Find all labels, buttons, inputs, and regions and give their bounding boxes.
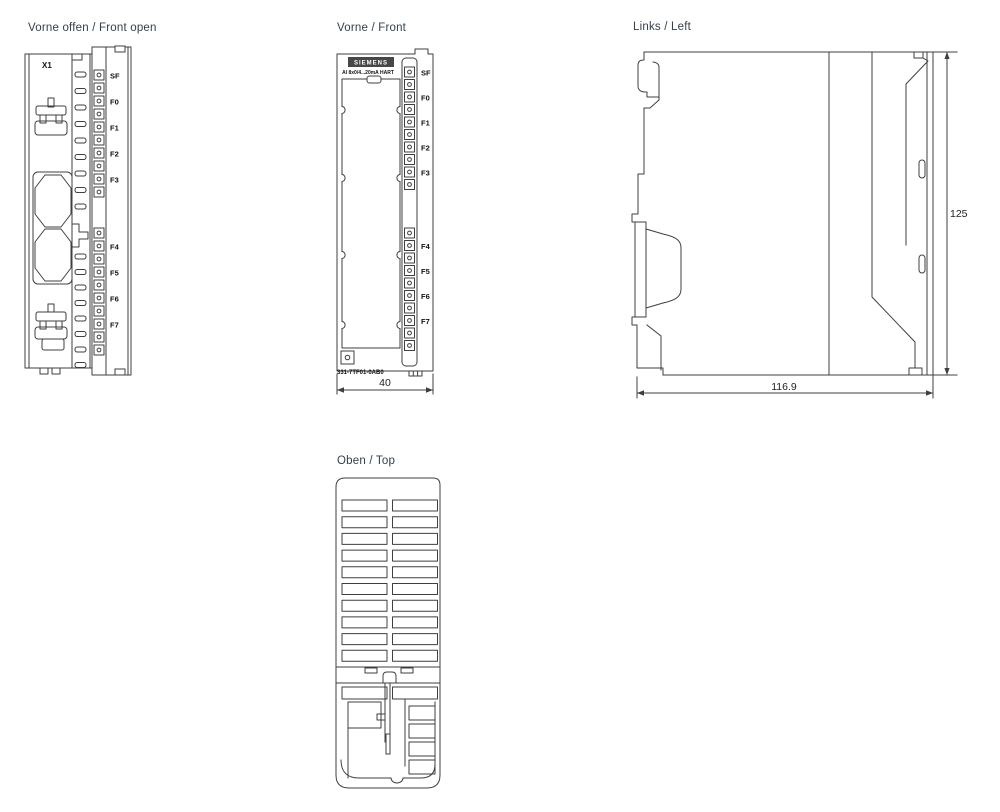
led-box bbox=[94, 174, 104, 184]
led-lamp bbox=[408, 269, 412, 273]
led-lamp bbox=[97, 125, 101, 129]
led-lamp bbox=[408, 319, 412, 323]
led-box bbox=[94, 332, 104, 342]
technical-drawing-canvas: Vorne offen / Front open Vorne / Front L… bbox=[0, 0, 1000, 812]
dimension-width-value: 40 bbox=[379, 377, 391, 389]
led-lamp bbox=[97, 177, 101, 181]
led-box bbox=[94, 135, 104, 145]
led-box bbox=[94, 254, 104, 264]
led-box bbox=[405, 241, 415, 251]
vent-slot bbox=[342, 550, 387, 561]
vent-slot bbox=[393, 533, 438, 544]
connector-label-x1: X1 bbox=[42, 61, 52, 70]
led-lamp bbox=[408, 231, 412, 235]
led-box bbox=[94, 187, 104, 197]
view-top bbox=[333, 470, 448, 800]
led-box bbox=[94, 70, 104, 80]
terminal-slot bbox=[75, 122, 86, 127]
brand-logo-text: SIEMENS bbox=[354, 61, 388, 67]
din-rail-profile bbox=[632, 52, 681, 375]
led-lamp bbox=[97, 138, 101, 142]
bottom-step bbox=[647, 325, 661, 370]
vent-slot bbox=[393, 500, 438, 511]
terminal-slot bbox=[75, 347, 86, 352]
led-lamp bbox=[97, 309, 101, 313]
dimension-width-40: 40 bbox=[337, 374, 433, 394]
led-label: F7 bbox=[421, 317, 430, 326]
terminal-slot bbox=[75, 155, 86, 160]
top-latch bbox=[35, 98, 67, 135]
view-title-front-open: Vorne offen / Front open bbox=[28, 22, 157, 34]
led-lamp bbox=[97, 283, 101, 287]
view-left-side: 125 116.9 bbox=[625, 40, 995, 405]
led-lamp bbox=[97, 244, 101, 248]
led-lamp bbox=[97, 86, 101, 90]
mounting-screw bbox=[341, 351, 354, 364]
led-box bbox=[405, 142, 415, 152]
led-lamp bbox=[97, 335, 101, 339]
led-lamp bbox=[408, 133, 412, 137]
dimension-depth-116-9: 116.9 bbox=[637, 375, 933, 398]
terminal-slot bbox=[75, 204, 86, 209]
led-box bbox=[94, 241, 104, 251]
led-box bbox=[94, 148, 104, 158]
lower-compartment bbox=[342, 683, 438, 778]
bus-connector-sockets bbox=[33, 172, 72, 284]
led-lamp bbox=[97, 99, 101, 103]
vent-slot bbox=[393, 517, 438, 528]
side-slot bbox=[919, 255, 925, 273]
led-lamp bbox=[408, 145, 412, 149]
terminal-slot bbox=[75, 363, 86, 368]
led-label: F4 bbox=[421, 242, 431, 251]
led-lamp bbox=[408, 170, 412, 174]
terminal-slot bbox=[75, 138, 86, 143]
led-label: F4 bbox=[110, 243, 120, 252]
terminal-slot bbox=[75, 316, 86, 321]
vent-slot bbox=[393, 600, 438, 611]
led-lamp bbox=[408, 83, 412, 87]
led-lamp bbox=[97, 231, 101, 235]
led-label: F2 bbox=[421, 144, 430, 153]
vent-slot bbox=[342, 650, 387, 661]
view-title-front: Vorne / Front bbox=[337, 22, 406, 34]
mid-band bbox=[336, 667, 440, 683]
led-label: F5 bbox=[110, 269, 119, 278]
led-strip: SFF0F1F2F3F4F5F6F7 bbox=[405, 67, 432, 351]
module-type-label: AI 8x0/4...20mA HART bbox=[342, 70, 394, 76]
led-box bbox=[405, 117, 415, 127]
terminal-slot bbox=[75, 188, 86, 193]
bus-connector-bump bbox=[646, 229, 681, 308]
door-latch-tab bbox=[367, 76, 381, 83]
led-box bbox=[405, 155, 415, 165]
vent-slot bbox=[342, 584, 387, 595]
led-lamp bbox=[408, 331, 412, 335]
vent-slot bbox=[342, 567, 387, 578]
vent-slot bbox=[393, 617, 438, 628]
led-label: SF bbox=[421, 69, 431, 78]
side-slot bbox=[919, 160, 925, 178]
led-label: F7 bbox=[110, 321, 119, 330]
led-label: F5 bbox=[421, 267, 430, 276]
led-lamp bbox=[408, 281, 412, 285]
led-box bbox=[94, 267, 104, 277]
led-lamp bbox=[408, 108, 412, 112]
led-box bbox=[94, 161, 104, 171]
terminal-slot bbox=[75, 332, 86, 337]
terminal-slot bbox=[75, 89, 86, 94]
led-lamp bbox=[408, 344, 412, 348]
terminal-slot bbox=[75, 301, 86, 306]
led-box bbox=[405, 328, 415, 338]
led-lamp bbox=[408, 120, 412, 124]
led-box bbox=[94, 345, 104, 355]
led-lamp bbox=[408, 158, 412, 162]
led-lamp bbox=[97, 164, 101, 168]
terminal-slot bbox=[75, 285, 86, 290]
led-box bbox=[405, 130, 415, 140]
led-label: SF bbox=[110, 72, 120, 81]
led-lamp bbox=[408, 70, 412, 74]
vent-slot bbox=[342, 533, 387, 544]
led-lamp bbox=[97, 322, 101, 326]
led-box bbox=[405, 67, 415, 77]
led-box bbox=[405, 291, 415, 301]
led-box bbox=[94, 83, 104, 93]
dimension-depth-value: 116.9 bbox=[771, 381, 797, 393]
vent-slot bbox=[342, 634, 387, 645]
terminal-slot bbox=[75, 270, 86, 275]
coding-key bbox=[72, 224, 88, 247]
led-label: F0 bbox=[421, 94, 430, 103]
terminal-slot bbox=[75, 72, 86, 77]
led-box bbox=[405, 341, 415, 351]
led-label: F0 bbox=[110, 98, 119, 107]
led-label: F2 bbox=[110, 150, 119, 159]
led-strip: SFF0F1F2F3F4F5F6F7 bbox=[94, 70, 120, 355]
led-box bbox=[405, 253, 415, 263]
bottom-latch bbox=[35, 304, 67, 350]
view-title-top: Oben / Top bbox=[337, 455, 395, 467]
led-label: F3 bbox=[110, 176, 119, 185]
led-box bbox=[405, 92, 415, 102]
terminal-slot bbox=[75, 254, 86, 259]
led-box bbox=[94, 319, 104, 329]
led-box bbox=[94, 122, 104, 132]
brand-logo-plate: SIEMENS bbox=[348, 57, 394, 67]
led-lamp bbox=[408, 244, 412, 248]
led-box bbox=[94, 306, 104, 316]
door-notches bbox=[341, 107, 401, 329]
led-lamp bbox=[408, 95, 412, 99]
led-lamp bbox=[97, 112, 101, 116]
led-lamp bbox=[408, 294, 412, 298]
vent-slot bbox=[342, 600, 387, 611]
led-lamp bbox=[97, 257, 101, 261]
terminal-slot-column bbox=[75, 72, 86, 368]
module-outline bbox=[337, 49, 433, 376]
led-lamp bbox=[97, 296, 101, 300]
led-box bbox=[405, 167, 415, 177]
led-box bbox=[405, 266, 415, 276]
vent-slot bbox=[393, 550, 438, 561]
led-lamp bbox=[97, 190, 101, 194]
front-flap-profile bbox=[872, 52, 928, 375]
led-box bbox=[405, 303, 415, 313]
led-lamp bbox=[97, 270, 101, 274]
vent-slot bbox=[342, 617, 387, 628]
led-box bbox=[405, 80, 415, 90]
led-box bbox=[94, 109, 104, 119]
led-lamp bbox=[408, 183, 412, 187]
led-label: F1 bbox=[421, 119, 430, 128]
led-box bbox=[94, 280, 104, 290]
terminal-slot bbox=[75, 105, 86, 110]
led-box bbox=[405, 228, 415, 238]
led-label: F1 bbox=[110, 124, 119, 133]
module-outline bbox=[644, 52, 957, 375]
led-box bbox=[405, 278, 415, 288]
vent-slot bbox=[393, 584, 438, 595]
vent-slot bbox=[393, 634, 438, 645]
view-title-left: Links / Left bbox=[633, 21, 691, 33]
vent-slot-grid bbox=[342, 500, 438, 661]
dimension-height-125: 125 bbox=[944, 52, 974, 375]
led-box bbox=[405, 105, 415, 115]
front-door bbox=[341, 76, 401, 348]
led-label: F6 bbox=[421, 292, 430, 301]
led-label: F6 bbox=[110, 295, 119, 304]
led-lamp bbox=[97, 151, 101, 155]
led-box bbox=[94, 293, 104, 303]
led-box bbox=[405, 180, 415, 190]
vent-slot bbox=[342, 500, 387, 511]
view-front: SIEMENS AI 8x0/4...20mA HART 331-7TF01-0… bbox=[335, 45, 445, 400]
led-lamp bbox=[97, 73, 101, 77]
led-lamp bbox=[408, 306, 412, 310]
vent-slot bbox=[393, 567, 438, 578]
order-number: 331-7TF01-0AB0 bbox=[337, 370, 384, 376]
view-front-open: X1 SFF0F1F2F3F4F5F6F7 bbox=[22, 42, 142, 387]
terminal-slot bbox=[75, 171, 86, 176]
dimension-height-value: 125 bbox=[950, 208, 968, 220]
led-box bbox=[405, 316, 415, 326]
led-box bbox=[94, 96, 104, 106]
led-lamp bbox=[97, 348, 101, 352]
vent-slot bbox=[393, 650, 438, 661]
vent-slot bbox=[342, 517, 387, 528]
led-box bbox=[94, 228, 104, 238]
led-lamp bbox=[408, 256, 412, 260]
led-label: F3 bbox=[421, 169, 430, 178]
